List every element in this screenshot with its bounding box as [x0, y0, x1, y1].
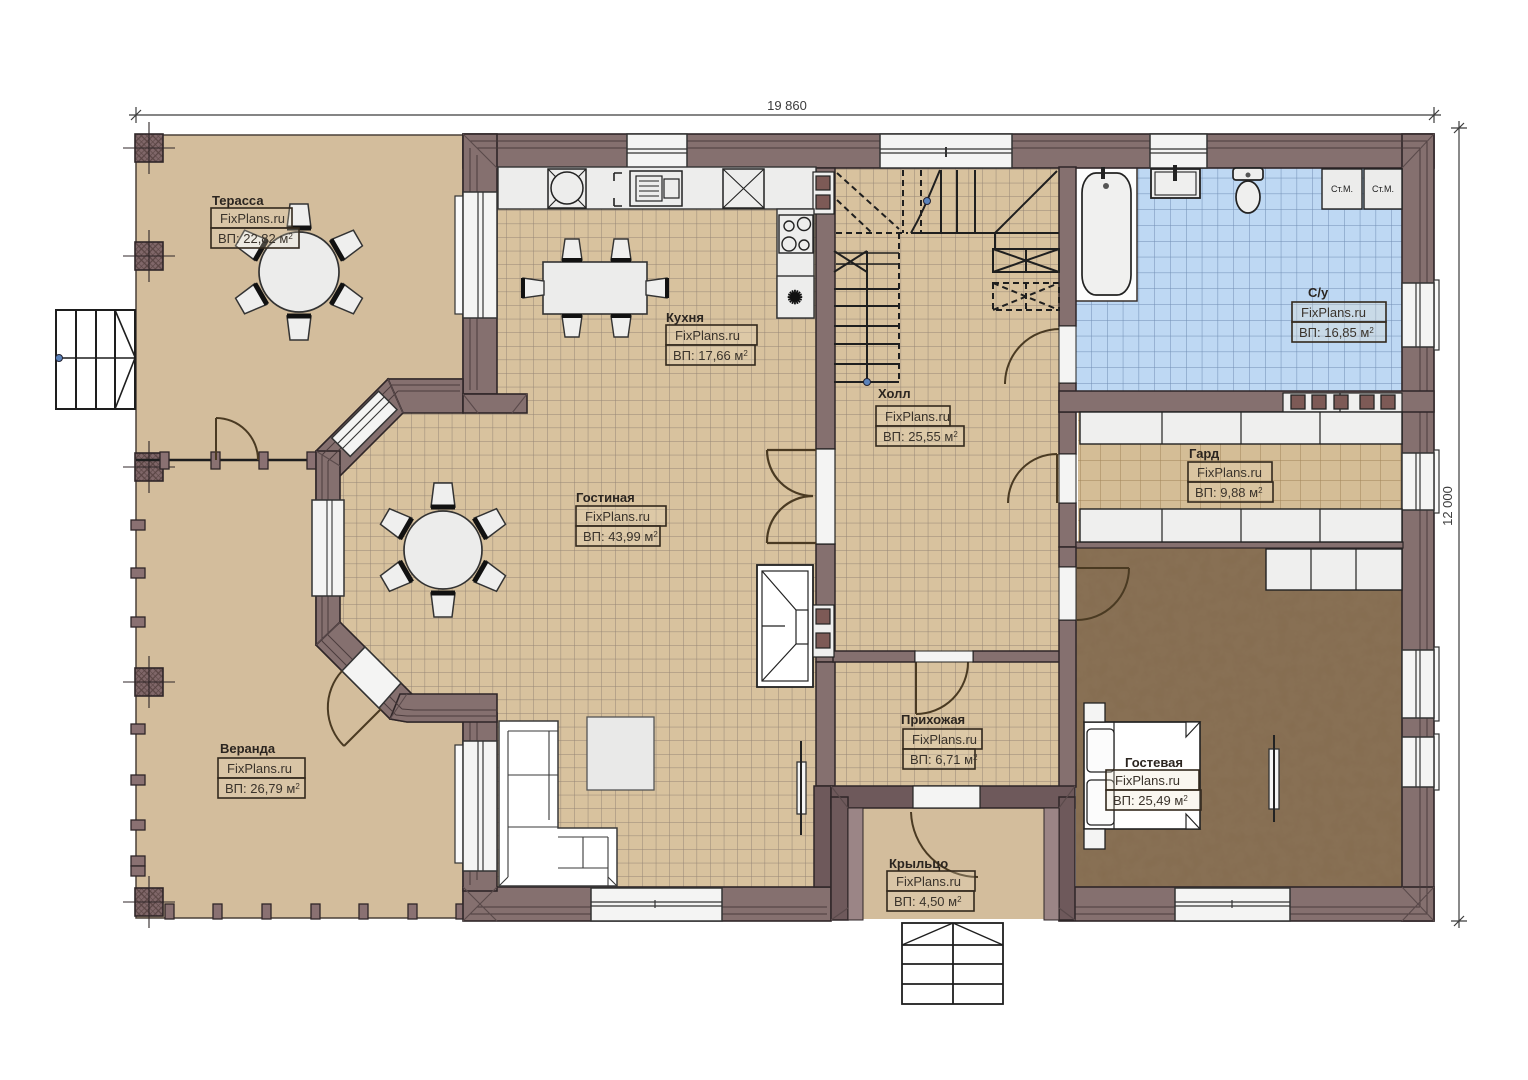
- svg-text:ВП: 43,99 м2: ВП: 43,99 м2: [583, 529, 658, 544]
- svg-text:ВП: 16,85 м2: ВП: 16,85 м2: [1299, 325, 1374, 340]
- svg-text:FixPlans.ru: FixPlans.ru: [675, 328, 740, 343]
- svg-text:Ст.М.: Ст.М.: [1331, 184, 1353, 194]
- svg-text:ВП: 6,71 м2: ВП: 6,71 м2: [910, 752, 978, 767]
- svg-text:19 860: 19 860: [767, 98, 807, 113]
- svg-text:Терасса: Терасса: [212, 193, 264, 208]
- svg-text:FixPlans.ru: FixPlans.ru: [1301, 305, 1366, 320]
- svg-text:Гард: Гард: [1189, 446, 1220, 461]
- svg-text:ВП: 17,66 м2: ВП: 17,66 м2: [673, 348, 748, 363]
- svg-text:Кухня: Кухня: [666, 310, 704, 325]
- svg-text:Веранда: Веранда: [220, 741, 276, 756]
- svg-text:Прихожая: Прихожая: [901, 712, 965, 727]
- svg-text:Холл: Холл: [878, 386, 911, 401]
- svg-text:FixPlans.ru: FixPlans.ru: [912, 732, 977, 747]
- svg-text:FixPlans.ru: FixPlans.ru: [1115, 773, 1180, 788]
- svg-text:С/у: С/у: [1308, 285, 1329, 300]
- svg-text:12 000: 12 000: [1440, 486, 1455, 526]
- svg-text:FixPlans.ru: FixPlans.ru: [227, 761, 292, 776]
- svg-text:ВП: 22,82 м2: ВП: 22,82 м2: [218, 231, 293, 246]
- svg-text:ВП: 25,49 м2: ВП: 25,49 м2: [1113, 793, 1188, 808]
- svg-text:FixPlans.ru: FixPlans.ru: [896, 874, 961, 889]
- svg-text:✺: ✺: [787, 288, 803, 309]
- svg-text:ВП: 4,50 м2: ВП: 4,50 м2: [894, 894, 962, 909]
- svg-text:Гостевая: Гостевая: [1125, 755, 1183, 770]
- svg-text:Крыльцо: Крыльцо: [889, 856, 948, 871]
- svg-text:Гостиная: Гостиная: [576, 490, 635, 505]
- svg-text:FixPlans.ru: FixPlans.ru: [1197, 465, 1262, 480]
- svg-text:FixPlans.ru: FixPlans.ru: [585, 509, 650, 524]
- svg-text:FixPlans.ru: FixPlans.ru: [885, 409, 950, 424]
- svg-text:ВП: 26,79 м2: ВП: 26,79 м2: [225, 781, 300, 796]
- svg-text:ВП: 9,88 м2: ВП: 9,88 м2: [1195, 485, 1263, 500]
- svg-text:FixPlans.ru: FixPlans.ru: [220, 211, 285, 226]
- svg-text:ВП: 25,55 м2: ВП: 25,55 м2: [883, 429, 958, 444]
- svg-text:Ст.М.: Ст.М.: [1372, 184, 1394, 194]
